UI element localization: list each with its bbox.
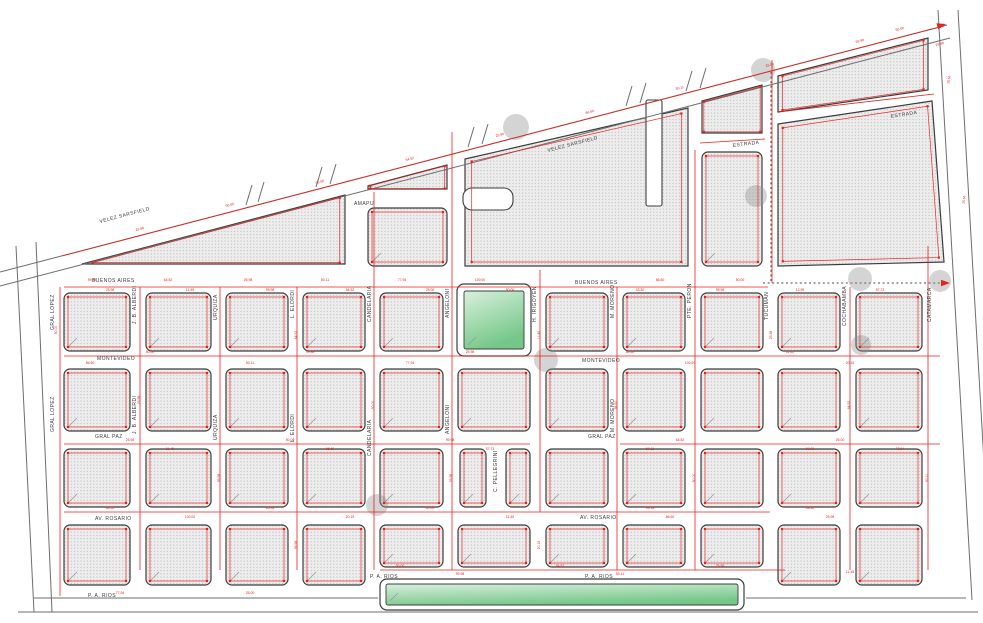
measurement-label: 99.98 [446,438,455,442]
measurement-label: 25.98 [449,474,453,483]
survey-node [759,86,761,88]
city-block [856,369,922,431]
measurement-label: 64.52 [626,350,635,354]
survey-node [306,452,308,454]
survey-node [603,346,605,348]
survey-node [369,187,371,189]
measurement-label: 99.98 [217,474,221,483]
intersection-circle [534,348,558,372]
city-block [701,525,763,567]
survey-node [758,562,760,564]
survey-node [471,160,473,162]
city-block [64,449,130,507]
survey-node [67,452,69,454]
measurement-label: 25.98 [106,288,115,292]
city-block [702,85,762,133]
city-block [82,195,345,264]
measurement-label: 99.98 [806,447,815,451]
survey-node [603,502,605,504]
street-edge-line [468,127,474,147]
survey-node [442,211,444,213]
city-block [458,369,530,431]
survey-node [461,562,463,564]
survey-node [283,502,285,504]
measurement-label: 50.00 [506,288,515,292]
survey-node [781,296,783,298]
city-block [458,525,530,567]
survey-node [922,88,924,90]
street-name-label: M. MORENO [610,285,616,319]
city-block [701,293,763,351]
survey-node [67,296,69,298]
survey-node [549,528,551,530]
survey-node [758,346,760,348]
survey-node [781,75,783,77]
street-name-label: GRAL PAZ [588,434,616,440]
measurement-label: 50.00 [396,564,405,568]
city-block [856,525,922,585]
city-block [303,449,365,507]
survey-node [444,165,446,167]
city-block [146,293,211,351]
measurement-label: 50.11 [646,447,654,451]
survey-node [758,502,760,504]
street-name-label: P. A. RIOS [88,593,116,599]
survey-node [680,562,682,564]
city-block [368,208,447,266]
street-name-label: L. ELORDI [290,290,296,318]
street-name-label: GRAL PAZ [95,434,123,440]
measurement-label: 25 M [962,196,967,204]
street-name-label: P. A. RIOS [585,574,613,580]
intersection-circle [503,114,529,140]
measurement-label: 99.98 [306,350,315,354]
survey-node [525,372,527,374]
survey-node [922,39,924,41]
survey-node [917,502,919,504]
measurement-label: 25.98 [826,515,835,519]
survey-node [781,528,783,530]
measurement-label: 77.94 [406,361,415,365]
survey-node [360,528,362,530]
survey-node [206,580,208,582]
city-block [226,293,288,351]
measurement-label: 11.45 [166,447,174,451]
measurement-label: 50.00 [426,506,435,510]
survey-node [917,426,919,428]
survey-node [626,426,628,428]
survey-node [626,562,628,564]
measurement-label: 64.52 [676,438,685,442]
city-block [64,525,130,585]
street-name-label: AMAPU [354,201,374,207]
city-block [146,449,211,507]
measurement-label: 86.60 [656,278,665,282]
survey-node [125,372,127,374]
measurement-label: 20.15 [346,515,355,519]
survey-node [680,296,682,298]
measurement-label: 77.94 [896,447,905,451]
survey-node [67,372,69,374]
measurement-label: 11.45 [846,570,854,574]
survey-node [549,562,551,564]
survey-node [283,528,285,530]
city-block [778,449,840,507]
survey-node [704,562,706,564]
survey-node [549,452,551,454]
street-name-label: C. PELLEGRINI [493,450,499,492]
city-block [380,525,443,567]
measurement-label: 25.98 [135,226,144,232]
measurement-label: 25.98 [466,350,475,354]
survey-node [442,261,444,263]
measurement-label: 11.45 [186,288,194,292]
city-map: 99.9864.5225.9850.1177.94100.0086.6050.0… [0,0,983,623]
street-edge-line [958,10,983,602]
survey-node [859,502,861,504]
park-green [386,584,738,605]
survey-node [703,101,705,103]
survey-node [229,580,231,582]
survey-node [149,580,151,582]
survey-node [626,502,628,504]
street-name-label: M. MORENO [610,399,616,433]
survey-node [703,131,705,133]
measurement-label: 57.73 [876,288,885,292]
measurement-label: 86.60 [666,515,675,519]
survey-node [360,296,362,298]
survey-node [371,261,373,263]
measurement-label: 25 M [946,76,951,84]
survey-node [149,528,151,530]
survey-node [125,580,127,582]
street-name-label: AV. ROSARIO [580,515,617,521]
survey-node [835,502,837,504]
measurement-label: 20.15 [537,541,541,550]
survey-node [757,261,759,263]
survey-node [781,580,783,582]
street-name-label: P. A. RIOS [370,574,398,580]
survey-node [67,426,69,428]
street-name-label: CATAMARCA [927,287,933,322]
city-block [778,293,840,351]
survey-node [835,346,837,348]
survey-node [360,452,362,454]
city-block [380,449,443,507]
street-edge-line [246,185,252,205]
street-name-label: ANGELONI [445,405,451,434]
survey-node [782,127,784,129]
survey-node [626,372,628,374]
city-block [702,152,762,266]
survey-node [938,256,940,258]
survey-node [67,502,69,504]
measurement-label: 50.00 [895,26,904,32]
survey-node [917,346,919,348]
survey-node [229,372,231,374]
survey-node [757,155,759,157]
survey-node [306,580,308,582]
survey-node [859,372,861,374]
measurement-label: 86.60 [326,447,335,451]
survey-node [283,372,285,374]
survey-node [781,502,783,504]
survey-node [626,296,628,298]
survey-node [306,372,308,374]
intersection-circle [851,335,871,355]
measurement-label: 99.98 [646,506,655,510]
survey-node [781,372,783,374]
survey-node [125,452,127,454]
measurement-label: 64.52 [405,156,414,162]
city-block [778,101,944,266]
city-block [303,293,365,351]
survey-node [917,452,919,454]
survey-node [704,296,706,298]
survey-node [444,187,446,189]
survey-node [229,452,231,454]
measurement-label: 50.11 [246,361,254,365]
street-edge-line [258,182,264,202]
survey-node [461,528,463,530]
city-block [546,525,608,567]
street-name-label: MONTEVIDEO [97,356,135,362]
survey-node [758,452,760,454]
street-notch [463,188,513,210]
survey-node [229,346,231,348]
survey-node [229,426,231,428]
measurement-label: 64.52 [556,564,565,568]
street-name-label: J. B. ALBERDI [132,396,138,434]
survey-node [603,426,605,428]
survey-node [438,528,440,530]
survey-node [859,296,861,298]
survey-node [680,452,682,454]
survey-node [859,580,861,582]
measurement-label: 100.00 [475,278,485,282]
survey-node [306,502,308,504]
survey-node [383,372,385,374]
measurement-label: 64.52 [294,331,298,340]
survey-node [549,296,551,298]
measurement-label: 11.45 [506,515,514,519]
measurement-label: 100.00 [185,515,195,519]
survey-node [67,528,69,530]
survey-node [759,131,761,133]
survey-node [603,528,605,530]
survey-node [461,426,463,428]
measurement-label: 99.98 [855,38,864,44]
survey-node [149,452,151,454]
survey-node [758,372,760,374]
survey-node [680,346,682,348]
survey-node [360,580,362,582]
survey-node [283,452,285,454]
measurement-label: 25.98 [244,278,253,282]
survey-node [206,296,208,298]
survey-node [206,452,208,454]
survey-node [125,528,127,530]
measurement-label: 64.52 [164,278,173,282]
survey-node [704,502,706,504]
survey-node [306,426,308,428]
survey-node [339,197,341,199]
measurement-label: 77.94 [116,591,125,595]
measurement-label: 64.52 [106,506,115,510]
survey-node [283,346,285,348]
survey-node [149,346,151,348]
survey-node [758,426,760,428]
survey-node [781,346,783,348]
survey-node [481,452,483,454]
street-edge-line [16,246,34,612]
survey-node [705,155,707,157]
measurement-label: 50.00 [371,401,375,410]
survey-node [383,528,385,530]
street-name-label: VELEZ SARSFIELD [99,206,151,225]
survey-node [206,346,208,348]
measurement-label: 25.98 [495,132,504,138]
survey-node [917,528,919,530]
survey-node [926,105,928,107]
measurement-label: 50.00 [736,278,745,282]
measurement-label: 25.00 [836,438,845,442]
measurement-label: 25.00 [426,288,435,292]
survey-node [383,452,385,454]
street-name-label: URQUIZA [213,414,219,440]
street-name-label: GRAL LOPEZ [50,396,56,432]
survey-node [781,426,783,428]
city-block [380,293,443,351]
survey-node [626,528,628,530]
street-name-label: URQUIZA [213,294,219,320]
survey-node [306,528,308,530]
survey-node [283,580,285,582]
street-name-label: COCHABAMBA [842,286,848,326]
survey-node [306,346,308,348]
measurement-label: 25.98 [266,506,275,510]
street-name-label: PTE. PERON [687,283,693,318]
survey-node [835,296,837,298]
survey-node [371,211,373,213]
survey-node [603,562,605,564]
street-edge-line [938,10,972,600]
survey-node [859,426,861,428]
survey-node [509,452,511,454]
survey-node [283,426,285,428]
survey-node [91,262,93,264]
survey-node [438,562,440,564]
survey-node [549,372,551,374]
survey-node [835,426,837,428]
measurement-label: 20.15 [846,361,855,365]
measurement-label: 50.00 [146,350,155,354]
measurement-label: 25.98 [769,331,773,340]
survey-node [438,346,440,348]
street-notch [646,100,662,206]
city-block [856,449,922,507]
survey-node [383,562,385,564]
survey-node [125,502,127,504]
street-name-label: ANGELONI [445,289,451,318]
city-block [226,449,288,507]
street-edge-line [482,124,488,144]
intersection-circle [848,267,872,291]
city-block [701,449,763,507]
survey-node [680,502,682,504]
city-block [64,369,130,431]
survey-node [525,502,527,504]
measurement-label: 99.98 [456,572,465,576]
city-block [146,525,211,585]
measurement-label: 11.45 [537,331,541,339]
survey-node [206,502,208,504]
street-name-label: J. B. ALBERDI [132,286,138,324]
survey-node [229,528,231,530]
survey-node [705,261,707,263]
survey-node [438,452,440,454]
survey-node [149,502,151,504]
street-edge-line [686,71,692,91]
measurement-label: 86.60 [86,361,95,365]
street-name-label: TUCUMAN [764,292,770,320]
survey-node [383,426,385,428]
survey-node [463,452,465,454]
survey-node [626,346,628,348]
survey-node [704,452,706,454]
measurement-label: 50.00 [692,474,696,483]
city-block [623,525,685,567]
survey-node [149,426,151,428]
survey-node [125,346,127,348]
survey-node [360,372,362,374]
survey-node [835,372,837,374]
survey-node [704,528,706,530]
measurement-label: 77.94 [398,278,407,282]
street-name-label: CANDELARIA [367,419,373,456]
survey-node [758,528,760,530]
measurement-label: 99.98 [294,541,298,550]
survey-node [603,296,605,298]
measurement-label: 25.98 [716,564,725,568]
survey-node [360,502,362,504]
measurement-label: 50.11 [675,85,684,91]
survey-node [67,346,69,348]
survey-node [835,528,837,530]
street-edge-line [700,68,706,88]
survey-node [438,426,440,428]
survey-node [525,452,527,454]
survey-node [626,452,628,454]
survey-node [680,112,682,114]
measurement-label: 25.00 [246,591,255,595]
survey-node [206,528,208,530]
survey-node [704,426,706,428]
survey-node [917,296,919,298]
measurement-label: 99.98 [315,179,324,185]
survey-node [835,580,837,582]
survey-node [680,261,682,263]
survey-node [149,296,151,298]
survey-node [206,372,208,374]
city-block [623,449,685,507]
survey-node [781,452,783,454]
survey-node [360,346,362,348]
survey-node [525,426,527,428]
survey-node [758,296,760,298]
survey-node [781,109,783,111]
measurement-label: 25.98 [126,438,135,442]
